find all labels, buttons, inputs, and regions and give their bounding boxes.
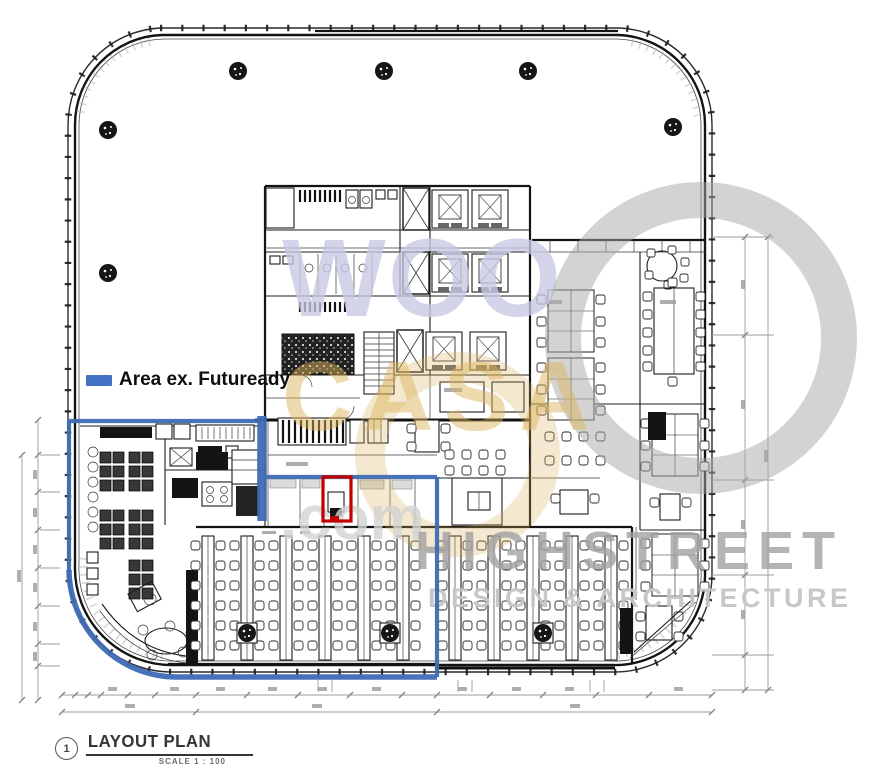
drawing-title: LAYOUT PLAN: [86, 731, 253, 756]
detail-number-bubble: 1: [55, 737, 78, 760]
highlight-area-outline: [68, 416, 437, 677]
legend-color-swatch: [86, 375, 112, 386]
title-block: 1 LAYOUT PLAN SCALE 1 : 100: [55, 731, 260, 766]
drawing-scale: SCALE 1 : 100: [86, 757, 260, 766]
floor-plan-screenshot: WOO CASA .com HIGHSTREET DESIGN & ARCHIT…: [0, 0, 870, 774]
legend-label: Area ex. Futuready: [119, 369, 290, 391]
legend-area-ex-futuready: Area ex. Futuready: [86, 369, 290, 391]
highlighted-room-outline: [323, 477, 351, 522]
